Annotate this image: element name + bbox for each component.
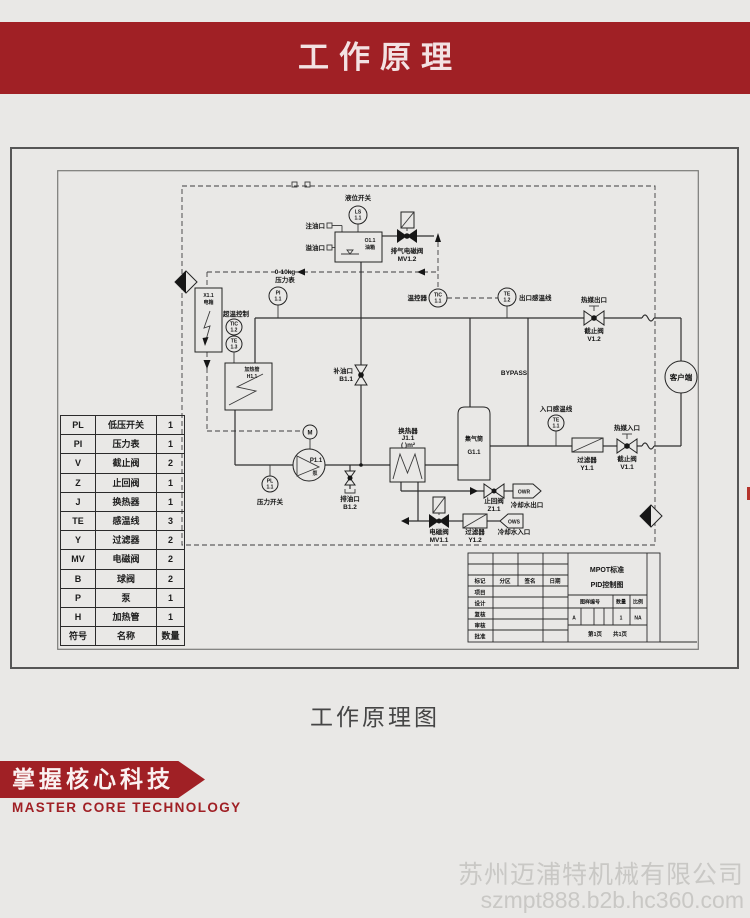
- cw-inlet-label: 冷却水入口: [498, 527, 531, 536]
- owr-port: OWR: [513, 484, 541, 498]
- legend-symbol: PL: [61, 416, 96, 435]
- legend-symbol: V: [61, 454, 96, 473]
- legend-row: B球阀2: [61, 569, 185, 588]
- tank-name: 油箱: [365, 244, 375, 251]
- boundary-diamond-left: [175, 271, 197, 293]
- tb-title1: MPOT标准: [590, 565, 624, 574]
- tb-size: A: [572, 616, 576, 622]
- motor-bubble: M: [303, 425, 317, 439]
- legend-row: PL低压开关1: [61, 416, 185, 435]
- check-name-label: 止回阀: [484, 496, 504, 505]
- hot-inlet-label: 热媒入口: [614, 423, 640, 432]
- legend-row: Z止回阀1: [61, 473, 185, 492]
- diagram-panel: 液位开关 LS 1.1 O1.1 油箱 注油口 溢油口: [10, 147, 739, 669]
- heater: 加热管 H1.1: [225, 363, 272, 410]
- inlet-sensor-label: 入口感温线: [539, 404, 573, 413]
- exhaust-valve-symbol: [397, 212, 417, 243]
- oil-tank: O1.1 油箱: [327, 223, 382, 262]
- tb-row1: 项目: [474, 589, 485, 597]
- level-switch-label: 液位开关: [345, 193, 372, 202]
- legend-row: P泵1: [61, 588, 185, 607]
- motor-label: M: [308, 431, 313, 437]
- legend-row: V截止阀2: [61, 454, 185, 473]
- legend-name: 低压开关: [96, 416, 157, 435]
- mv11-tag-label: MV1.1: [430, 537, 449, 544]
- legend-qty: 1: [157, 416, 185, 435]
- gas-cylinder: 集气筒 G1.1: [458, 407, 490, 480]
- pump-tag: P1.1: [310, 458, 323, 464]
- legend-table: PL低压开关1 PI压力表1 V截止阀2 Z止回阀1 J换热器1 TE感温线3 …: [60, 415, 185, 646]
- te2-no: 1.2: [504, 298, 511, 304]
- legend-symbol: Y: [61, 531, 96, 550]
- v11-valve-symbol: [617, 434, 637, 453]
- legend-qty: 1: [157, 492, 185, 511]
- tb-dwgno: 图样编号: [580, 599, 600, 606]
- pl-no: 1.1: [267, 485, 274, 491]
- ls-no: 1.1: [355, 216, 362, 222]
- legend-symbol: B: [61, 569, 96, 588]
- v12-tag-label: V1.2: [587, 336, 601, 343]
- tb-scale: 比例: [633, 599, 643, 606]
- pump-symbol: P1.1 泵: [293, 449, 325, 481]
- legend-row: TE感温线3: [61, 512, 185, 531]
- legend-symbol: J: [61, 492, 96, 511]
- heat-exchanger: [390, 448, 425, 482]
- pressure-switch-label: 压力开关: [257, 497, 284, 506]
- legend-name: 泵: [96, 588, 157, 607]
- legend-name: 换热器: [96, 492, 157, 511]
- makeup-port-label: 补油口: [333, 366, 354, 375]
- makeup-valve-symbol: [355, 365, 367, 385]
- ows-label: OWS: [508, 520, 521, 526]
- drain-tag-label: B1.2: [343, 504, 357, 511]
- legend-qty: 1: [157, 588, 185, 607]
- gauge-range-label: 0-10kg: [275, 269, 296, 276]
- filter1-symbol: [572, 438, 603, 452]
- legend-row: PI压力表1: [61, 435, 185, 454]
- page: 工作原理: [0, 0, 750, 918]
- legend-name: 感温线: [96, 512, 157, 531]
- legend-row: MV电磁阀2: [61, 550, 185, 569]
- header-banner: 工作原理: [0, 22, 750, 94]
- overtemp-bubbles: TIC 1.2 TE 1.3: [226, 319, 242, 363]
- te1-bubble: TE 1.1: [548, 415, 564, 431]
- tb-row5: 批准: [474, 633, 486, 641]
- legend-symbol: Z: [61, 473, 96, 492]
- tb-qty-val: 1: [620, 616, 623, 622]
- filter1-tag-label: Y1.1: [580, 465, 594, 472]
- legend-name: 止回阀: [96, 473, 157, 492]
- filter2-name-label: 过滤器: [465, 527, 485, 536]
- pressure-switch-bubble: PL 1.1: [262, 476, 278, 492]
- ebox-name: 电箱: [203, 299, 213, 306]
- title-block: 标记 分区 签名 日期 项目 设计 复核 审核 批准 MPOT标准 PID控制图: [468, 553, 697, 642]
- watermark-url: szmpt888.b2b.hc360.com: [458, 888, 744, 912]
- check-tag-label: Z1.1: [487, 506, 500, 513]
- legend-name: 球阀: [96, 569, 157, 588]
- legend-qty: 2: [157, 531, 185, 550]
- tank-tag: O1.1: [365, 238, 376, 244]
- footer-banner-subtext: MASTER CORE TECHNOLOGY: [12, 800, 242, 815]
- v11-name-label: 截止阀: [617, 454, 637, 463]
- gas-tag: G1.1: [467, 450, 481, 456]
- bypass-label: BYPASS: [501, 370, 528, 377]
- filter2-tag-label: Y1.2: [468, 537, 482, 544]
- legend-name: 过滤器: [96, 531, 157, 550]
- hot-outlet-label: 热媒出口: [581, 295, 607, 304]
- ows-port: OWS: [500, 514, 523, 528]
- legend-symbol-header: 符号: [61, 627, 96, 646]
- legend-name: 截止阀: [96, 454, 157, 473]
- page-title: 工作原理: [0, 22, 750, 94]
- tb-qty: 数量: [616, 599, 626, 606]
- hx-name-label: 换热器: [398, 426, 418, 435]
- legend-symbol: MV: [61, 550, 96, 569]
- legend-symbol: PI: [61, 435, 96, 454]
- legend-qty: 1: [157, 435, 185, 454]
- filter1-name-label: 过滤器: [577, 455, 597, 464]
- legend-qty-header: 数量: [157, 627, 185, 646]
- tb-row4: 审核: [474, 622, 486, 630]
- footer-banner: 掌握核心科技: [0, 761, 205, 798]
- temp-controller-label: 温控器: [408, 293, 428, 302]
- pi-no: 1.1: [275, 297, 282, 303]
- tb-col4: 日期: [549, 577, 561, 585]
- overtemp-label: 超温控制: [222, 309, 250, 318]
- fill-port-label: 注油口: [306, 221, 326, 230]
- te2-bubble: TE 1.2: [498, 288, 516, 306]
- hx-tag-label: J1.1: [402, 435, 415, 442]
- drain-port-label: 排油口: [340, 494, 360, 503]
- v11-tag-label: V1.1: [620, 464, 634, 471]
- legend-qty: 1: [157, 473, 185, 492]
- check-valve-symbol: [484, 484, 504, 498]
- level-switch-bubble: LS 1.1: [349, 206, 367, 224]
- legend-row: Y过滤器2: [61, 531, 185, 550]
- legend-name: 加热管: [96, 608, 157, 627]
- legend-qty: 2: [157, 569, 185, 588]
- v12-valve-symbol: [584, 306, 604, 325]
- filter2-symbol: [463, 514, 487, 528]
- overflow-port-label: 溢油口: [306, 243, 326, 252]
- tb-page2: 共1页: [613, 630, 628, 638]
- tb-title2: PID控制图: [591, 580, 624, 589]
- owr-label: OWR: [518, 490, 531, 496]
- tic1-bubble: TIC 1.1: [429, 289, 447, 307]
- client-node: 客户端: [665, 361, 697, 393]
- legend-header-row: 符号名称数量: [61, 627, 185, 646]
- outlet-sensor-label: 出口感温线: [519, 293, 552, 302]
- electric-box: X1.1 电箱: [195, 288, 222, 352]
- tb-col2: 分区: [499, 577, 511, 585]
- client-label: 客户端: [669, 372, 693, 382]
- gauge-name-label: 压力表: [275, 275, 295, 284]
- v12-name-label: 截止阀: [584, 326, 604, 335]
- legend-qty: 3: [157, 512, 185, 531]
- legend-name: 压力表: [96, 435, 157, 454]
- exhaust-valve-label: 排气电磁阀: [391, 246, 424, 255]
- footer-banner-text: 掌握核心科技: [0, 761, 205, 798]
- legend-qty: 2: [157, 454, 185, 473]
- tb-row2: 设计: [474, 600, 486, 608]
- legend-name: 电磁阀: [96, 550, 157, 569]
- exhaust-valve-tag: MV1.2: [398, 256, 417, 263]
- legend-qty: 1: [157, 608, 185, 627]
- legend-row: H加热管1: [61, 608, 185, 627]
- mv11-name-label: 电磁阀: [429, 527, 449, 536]
- boundary-diamond-right: [640, 505, 662, 527]
- legend-symbol: H: [61, 608, 96, 627]
- ebox-tag: X1.1: [203, 293, 214, 299]
- makeup-tag-label: B1.1: [339, 376, 353, 383]
- te1-no: 1.1: [553, 424, 560, 430]
- cw-outlet-label: 冷却水出口: [511, 500, 544, 509]
- pressure-gauge-bubble: PI 1.1: [269, 287, 287, 305]
- te3-no: 1.3: [231, 345, 238, 351]
- tb-page1: 第1页: [588, 630, 603, 638]
- watermark-company: 苏州迈浦特机械有限公司: [458, 862, 744, 888]
- drain-valve-symbol: [345, 471, 355, 493]
- mv11-valve-symbol: [429, 497, 449, 528]
- legend-row: J换热器1: [61, 492, 185, 511]
- tb-scale-val: NA: [634, 616, 642, 622]
- diagram-caption: 工作原理图: [0, 698, 750, 732]
- legend-symbol: P: [61, 588, 96, 607]
- legend-qty: 2: [157, 550, 185, 569]
- gas-name: 集气筒: [464, 435, 483, 443]
- watermark: 苏州迈浦特机械有限公司 szmpt888.b2b.hc360.com: [458, 862, 744, 912]
- legend-name-header: 名称: [96, 627, 157, 646]
- tic2-no: 1.2: [231, 328, 238, 334]
- tic1-no: 1.1: [435, 299, 442, 305]
- tb-col3: 签名: [523, 577, 535, 585]
- tb-row3: 复核: [473, 611, 486, 619]
- tb-col1: 标记: [473, 577, 486, 585]
- heater-name: 加热管: [243, 366, 259, 373]
- legend-symbol: TE: [61, 512, 96, 531]
